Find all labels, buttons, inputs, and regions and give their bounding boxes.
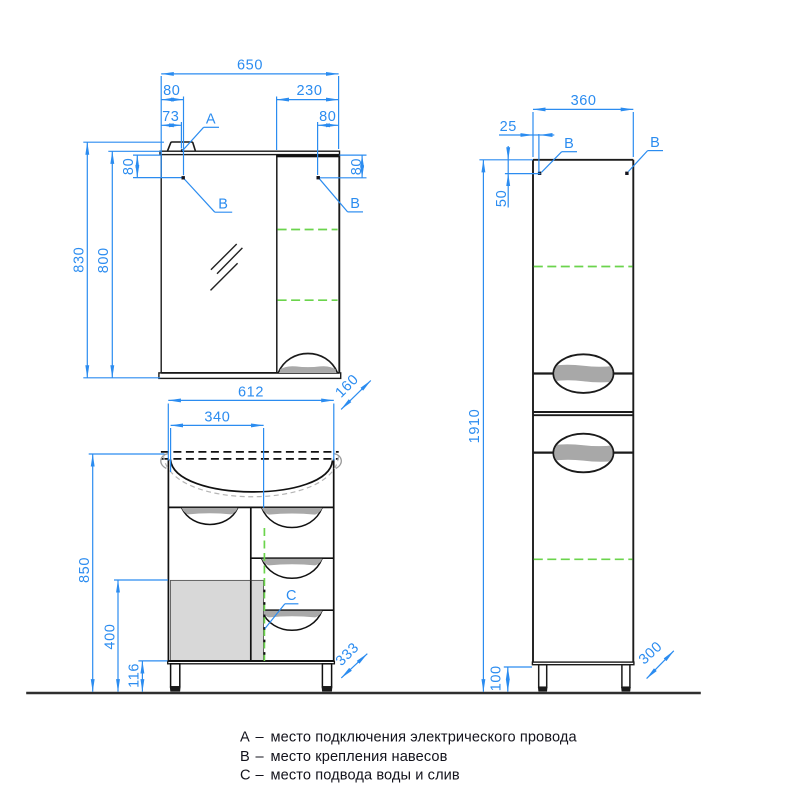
svg-text:С–место подвода воды и слив: С–место подвода воды и слив <box>240 767 460 783</box>
svg-text:830: 830 <box>72 247 88 273</box>
svg-text:360: 360 <box>571 93 597 109</box>
svg-text:B: B <box>564 136 574 152</box>
svg-text:25: 25 <box>500 119 517 135</box>
svg-text:50: 50 <box>494 190 510 207</box>
svg-text:800: 800 <box>96 247 112 273</box>
svg-text:B: B <box>350 196 360 212</box>
svg-text:80: 80 <box>121 158 137 175</box>
svg-text:850: 850 <box>77 557 93 583</box>
svg-text:160: 160 <box>333 372 363 402</box>
svg-text:333: 333 <box>333 640 363 670</box>
svg-text:80: 80 <box>349 158 365 175</box>
svg-text:340: 340 <box>204 410 230 426</box>
svg-text:650: 650 <box>237 58 263 74</box>
svg-text:116: 116 <box>127 663 143 688</box>
svg-text:B: B <box>218 197 228 213</box>
svg-text:A: A <box>206 112 216 128</box>
svg-text:А–место подключения электричес: А–место подключения электрического прово… <box>240 730 577 746</box>
svg-text:В–место крепления навесов: В–место крепления навесов <box>240 749 448 765</box>
svg-text:230: 230 <box>297 83 323 99</box>
svg-text:C: C <box>286 588 297 604</box>
svg-text:80: 80 <box>163 83 180 99</box>
svg-text:80: 80 <box>319 109 336 125</box>
svg-text:612: 612 <box>238 384 264 400</box>
svg-text:100: 100 <box>488 665 504 691</box>
svg-text:B: B <box>650 135 660 151</box>
svg-text:1910: 1910 <box>467 409 483 444</box>
svg-text:400: 400 <box>102 624 118 650</box>
svg-text:73: 73 <box>162 109 179 125</box>
